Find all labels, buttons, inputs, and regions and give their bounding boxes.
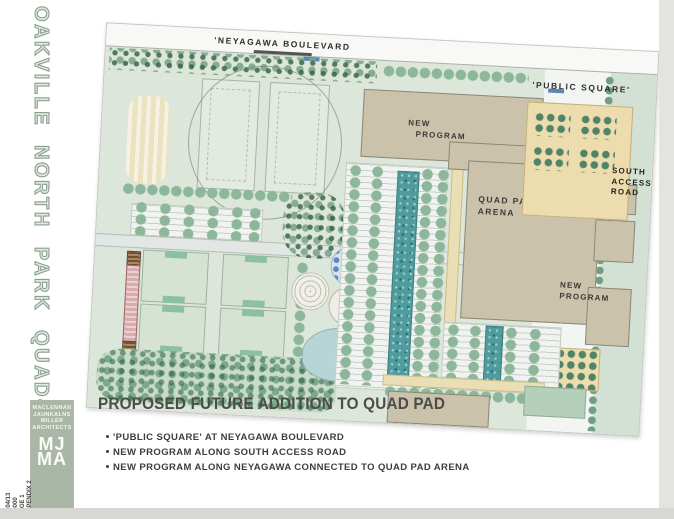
square-tree-cluster xyxy=(532,146,569,172)
scanned-plan-page: OAKVILLE NORTH PARK QUAD-PAD MACLENNAN J… xyxy=(0,0,674,519)
bullet-item: 'PUBLIC SQUARE' AT NEYAGAWA BOULEVARD xyxy=(106,430,568,445)
goal-box xyxy=(242,309,264,317)
garden-mound xyxy=(125,95,172,185)
tree-cluster xyxy=(281,191,346,260)
soccer-field xyxy=(138,303,206,354)
bullet-item: NEW PROGRAM ALONG SOUTH ACCESS ROAD xyxy=(106,445,568,460)
bullet-text: 'PUBLIC SQUARE' AT NEYAGAWA BOULEVARD xyxy=(113,432,344,443)
goal-box xyxy=(165,251,187,259)
bullet-text: NEW PROGRAM ALONG SOUTH ACCESS ROAD xyxy=(113,447,346,458)
annotation-bullets: 'PUBLIC SQUARE' AT NEYAGAWA BOULEVARD NE… xyxy=(98,430,568,475)
site-plan-sheet: 'NEYAGAWA BOULEVARD xyxy=(86,22,659,436)
bullet-text: NEW PROGRAM ALONG NEYAGAWA CONNECTED TO … xyxy=(113,462,470,473)
bullet-dot-icon xyxy=(106,435,109,438)
vertical-project-title: OAKVILLE NORTH PARK QUAD-PAD xyxy=(29,6,52,456)
soccer-field xyxy=(141,250,210,305)
parking-tree-row xyxy=(182,204,196,241)
parking-tree-row xyxy=(248,207,262,244)
annotation-title: PROPOSED FUTURE ADDITION TO QUAD PAD xyxy=(98,394,521,414)
bullet-dot-icon xyxy=(106,450,109,453)
new-program-east-label: NEW PROGRAM xyxy=(559,279,610,304)
soccer-field xyxy=(220,254,289,309)
label-line: ROAD xyxy=(611,187,652,200)
annotation-block: PROPOSED FUTURE ADDITION TO QUAD PAD 'PU… xyxy=(98,394,568,475)
square-tree-cluster xyxy=(578,148,615,174)
parking-tree-row xyxy=(158,202,172,239)
page-edge-bottom xyxy=(0,508,674,519)
soccer-field xyxy=(218,308,286,359)
goal-box xyxy=(163,296,185,304)
page-edge-right xyxy=(659,0,674,519)
south-access-road-label: SOUTH ACCESS ROAD xyxy=(611,166,653,200)
firm-name: MACLENNAN JAUNKALNS MILLER ARCHITECTS xyxy=(30,400,74,431)
goal-box xyxy=(245,255,267,263)
square-tree-cluster xyxy=(580,114,617,140)
firm-name-line: MACLENNAN xyxy=(30,405,74,412)
new-program-north-label: NEW PROGRAM xyxy=(407,117,466,142)
mjma-logo-bottom: MA xyxy=(30,452,74,467)
goal-box xyxy=(242,300,264,308)
bullet-dot-icon xyxy=(106,465,109,468)
parking-tree-row xyxy=(230,206,244,243)
parking-tree-row xyxy=(206,205,220,242)
parking-tree-row xyxy=(134,201,148,238)
square-tree-cluster xyxy=(534,112,571,138)
goal-box xyxy=(162,305,184,313)
mjma-logo: MJ MA xyxy=(30,437,74,467)
new-program-east-building xyxy=(593,219,635,263)
firm-name-line: ARCHITECTS xyxy=(30,425,74,432)
mjma-logo-block: MACLENNAN JAUNKALNS MILLER ARCHITECTS MJ… xyxy=(30,400,74,519)
bullet-item: NEW PROGRAM ALONG NEYAGAWA CONNECTED TO … xyxy=(106,460,568,475)
